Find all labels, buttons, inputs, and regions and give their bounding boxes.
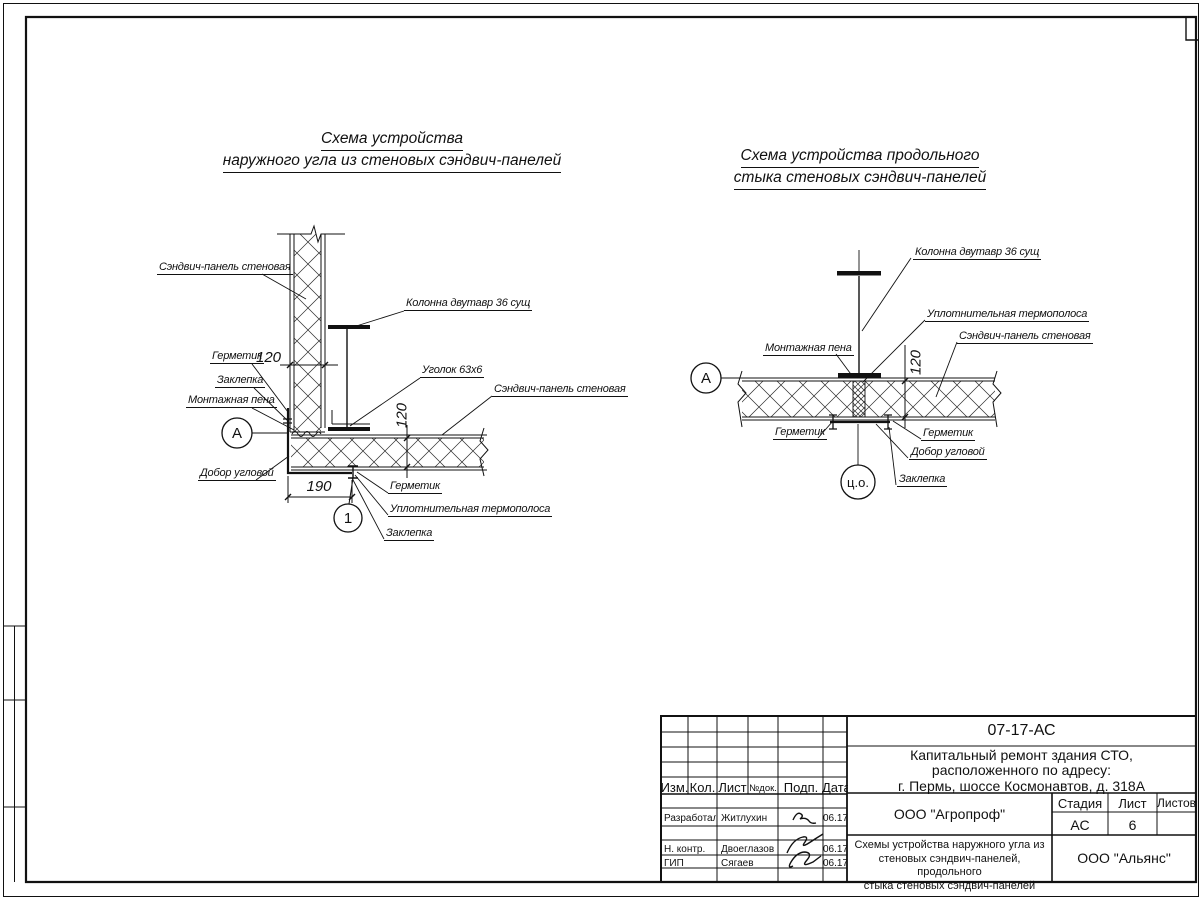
left-diagram-title-line1: Схема устройства: [321, 129, 463, 151]
label-sealant-left: Герметик: [773, 426, 827, 440]
label-sealant-bottom: Герметик: [388, 480, 442, 494]
label-thermal-strip: Уплотнительная термополоса: [925, 308, 1089, 322]
col-header-podp: Подп.: [779, 780, 823, 795]
axis-marker-a-left: А: [227, 426, 247, 441]
axis-marker-a-right: А: [696, 371, 716, 386]
sheet-title-line1: Схемы устройства наружного угла из: [847, 839, 1052, 853]
wall-panel-hatch: [742, 381, 995, 417]
row-date: 06.17: [823, 858, 847, 870]
left-diagram-title: Схема устройства наружного угла из стено…: [222, 129, 562, 173]
label-column-beam: Колонна двутавр 36 сущ: [404, 297, 532, 311]
row-role: Разработал: [664, 813, 716, 825]
stage-label: Стадия: [1052, 796, 1108, 811]
left-diagram-title-line2: наружного угла из стеновых сэндвич-панел…: [223, 151, 562, 173]
sheet-title: Схемы устройства наружного угла из стено…: [847, 839, 1052, 893]
signature-2: [787, 834, 823, 853]
sheet-title-line3: стыка стеновых сэндвич-панелей: [847, 880, 1052, 894]
doc-code: 07-17-АС: [847, 722, 1196, 740]
label-rivet: Заклепка: [897, 473, 947, 487]
project-line3: г. Пермь, шоссе Космонавтов, д. 318А: [847, 779, 1196, 794]
dim-190: 190: [298, 479, 340, 494]
col-header-data: Дата: [822, 780, 848, 795]
label-rivet-top: Заклепка: [215, 374, 265, 388]
project-line2: расположенного по адресу:: [847, 763, 1196, 778]
label-foam: Монтажная пена: [763, 342, 854, 356]
label-thermal-strip: Уплотнительная термополоса: [388, 503, 552, 517]
signature-3: [789, 852, 821, 867]
org-designer: ООО "Агропроф": [847, 806, 1052, 822]
row-name: Двоеглазов: [721, 844, 777, 856]
right-diagram-geometry: [691, 250, 1001, 499]
right-diagram-title-line1: Схема устройства продольного: [741, 146, 980, 168]
angle-profile: [332, 410, 370, 424]
sheet-value: 6: [1108, 817, 1157, 833]
org-customer: ООО "Альянс": [1052, 850, 1196, 866]
col-header-list: Лист: [716, 780, 749, 795]
wall-panel-horizontal-hatch: [291, 438, 484, 467]
label-sandwich-panel-vertical: Сэндвич-панель стеновая: [157, 261, 293, 275]
col-header-izm: Изм.: [659, 780, 690, 795]
label-sandwich-panel: Сэндвич-панель стеновая: [957, 330, 1093, 344]
col-header-ndoc: №док.: [747, 783, 779, 794]
row-role: ГИП: [664, 858, 716, 870]
thermal-strip: [853, 381, 865, 417]
dim-120-top: 120: [256, 350, 281, 365]
dim-120-right: 120: [395, 402, 410, 430]
label-corner-trim: Добор угловой: [198, 467, 276, 481]
sheets-label: Листов: [1157, 796, 1196, 810]
label-sandwich-panel-horizontal: Сэндвич-панель стеновая: [492, 383, 628, 397]
detail-marker-1: 1: [338, 511, 358, 526]
signature-1: [793, 813, 816, 823]
label-column-beam: Колонна двутавр 36 сущ: [913, 246, 1041, 260]
label-foam: Монтажная пена: [186, 394, 277, 408]
center-axis-marker: ц.о.: [842, 475, 874, 490]
row-date: 06.17: [823, 844, 847, 856]
sheet-title-line2: стеновых сэндвич-панелей, продольного: [847, 853, 1052, 880]
label-rivet-bottom: Заклепка: [384, 527, 434, 541]
right-diagram-title-line2: стыка стеновых сэндвич-панелей: [734, 168, 986, 190]
project-line1: Капитальный ремонт здания СТО,: [847, 748, 1196, 763]
project-description: Капитальный ремонт здания СТО, расположе…: [847, 748, 1196, 794]
drawing-sheet: { "left_diagram": { "title_line1": "Схем…: [0, 0, 1200, 900]
label-corner-trim: Добор угловой: [909, 446, 987, 460]
right-diagram-title: Схема устройства продольного стыка стено…: [700, 146, 1020, 190]
dim-120: 120: [909, 349, 924, 377]
label-angle: Уголок 63х6: [420, 364, 484, 378]
sheet-label: Лист: [1108, 796, 1157, 811]
label-sealant-right: Герметик: [921, 427, 975, 441]
row-name: Житлухин: [721, 813, 777, 825]
column-beam: [328, 325, 370, 431]
row-name: Сягаев: [721, 858, 777, 870]
column-beam: [837, 250, 881, 378]
row-date: 06.17: [823, 813, 847, 825]
wall-panel-vertical-hatch: [294, 234, 321, 432]
row-role: Н. контр.: [664, 844, 716, 856]
col-header-kol: Кол.: [687, 780, 718, 795]
stage-value: АС: [1052, 817, 1108, 833]
